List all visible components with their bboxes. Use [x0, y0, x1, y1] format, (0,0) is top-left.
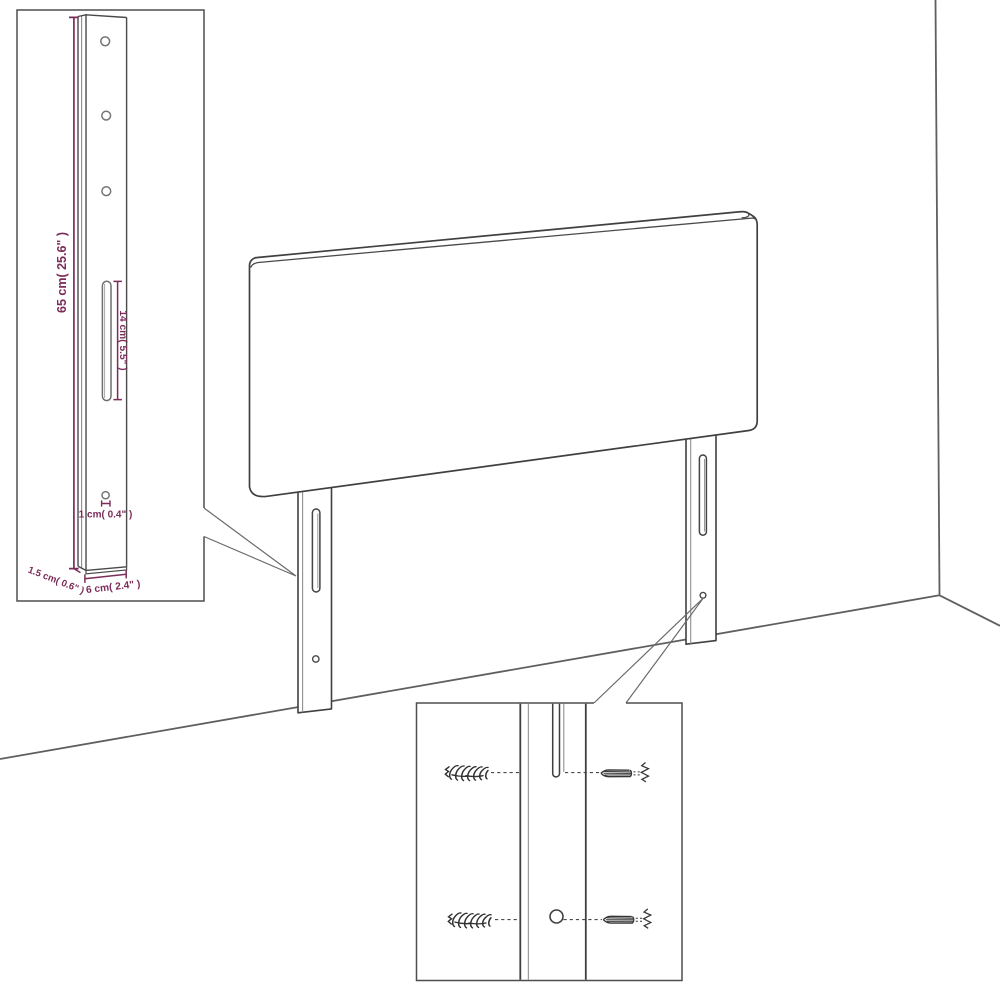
svg-text:65 cm( 25.6" ): 65 cm( 25.6" )	[55, 232, 69, 313]
svg-text:14 cm( 5.5" ): 14 cm( 5.5" )	[117, 310, 128, 370]
svg-text:1 cm( 0.4" ): 1 cm( 0.4" )	[79, 510, 133, 521]
